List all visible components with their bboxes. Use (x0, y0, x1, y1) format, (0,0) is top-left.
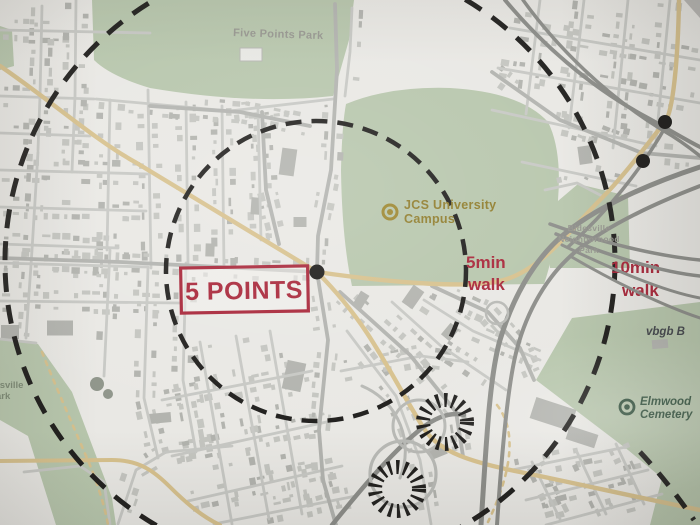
street (186, 102, 188, 263)
bidesville-label-line2: Neighborhood (558, 234, 620, 244)
bidesville-label-line3: Park (579, 245, 599, 255)
university-label-line2: Campus (404, 212, 455, 226)
five-min-label-line1: 5min (466, 253, 506, 272)
map-photo: 10min walk Five Points Park JCS Universi… (0, 0, 700, 525)
five-points-node-dot (310, 265, 325, 280)
vbgb-label: vbgb B (646, 326, 685, 338)
map-canvas: 10min walk Five Points Park JCS Universi… (0, 0, 700, 525)
street (0, 301, 180, 303)
university-ring-icon-dot (387, 209, 393, 215)
road-node-dot-north (658, 115, 672, 129)
cemetery-label-line1: Elmwood (640, 396, 692, 408)
five-points-title: 5 POINTS (181, 266, 309, 313)
bidesville-label-line1: Bidesville (568, 223, 611, 233)
left-park-label-line2: ark (0, 391, 11, 402)
road-node-dot-south (636, 154, 650, 168)
five-min-label-line2: walk (467, 275, 505, 294)
university-label-line1: JCS University (404, 198, 496, 212)
cemetery-label-line2: Cemetery (640, 409, 693, 421)
left-park-label-line1: rsville (0, 380, 23, 391)
cemetery-ring-icon-dot (624, 404, 630, 410)
street (222, 106, 224, 268)
park-area-topleft-sliver (0, 26, 14, 70)
five-points-label-text: 5 POINTS (185, 276, 303, 306)
